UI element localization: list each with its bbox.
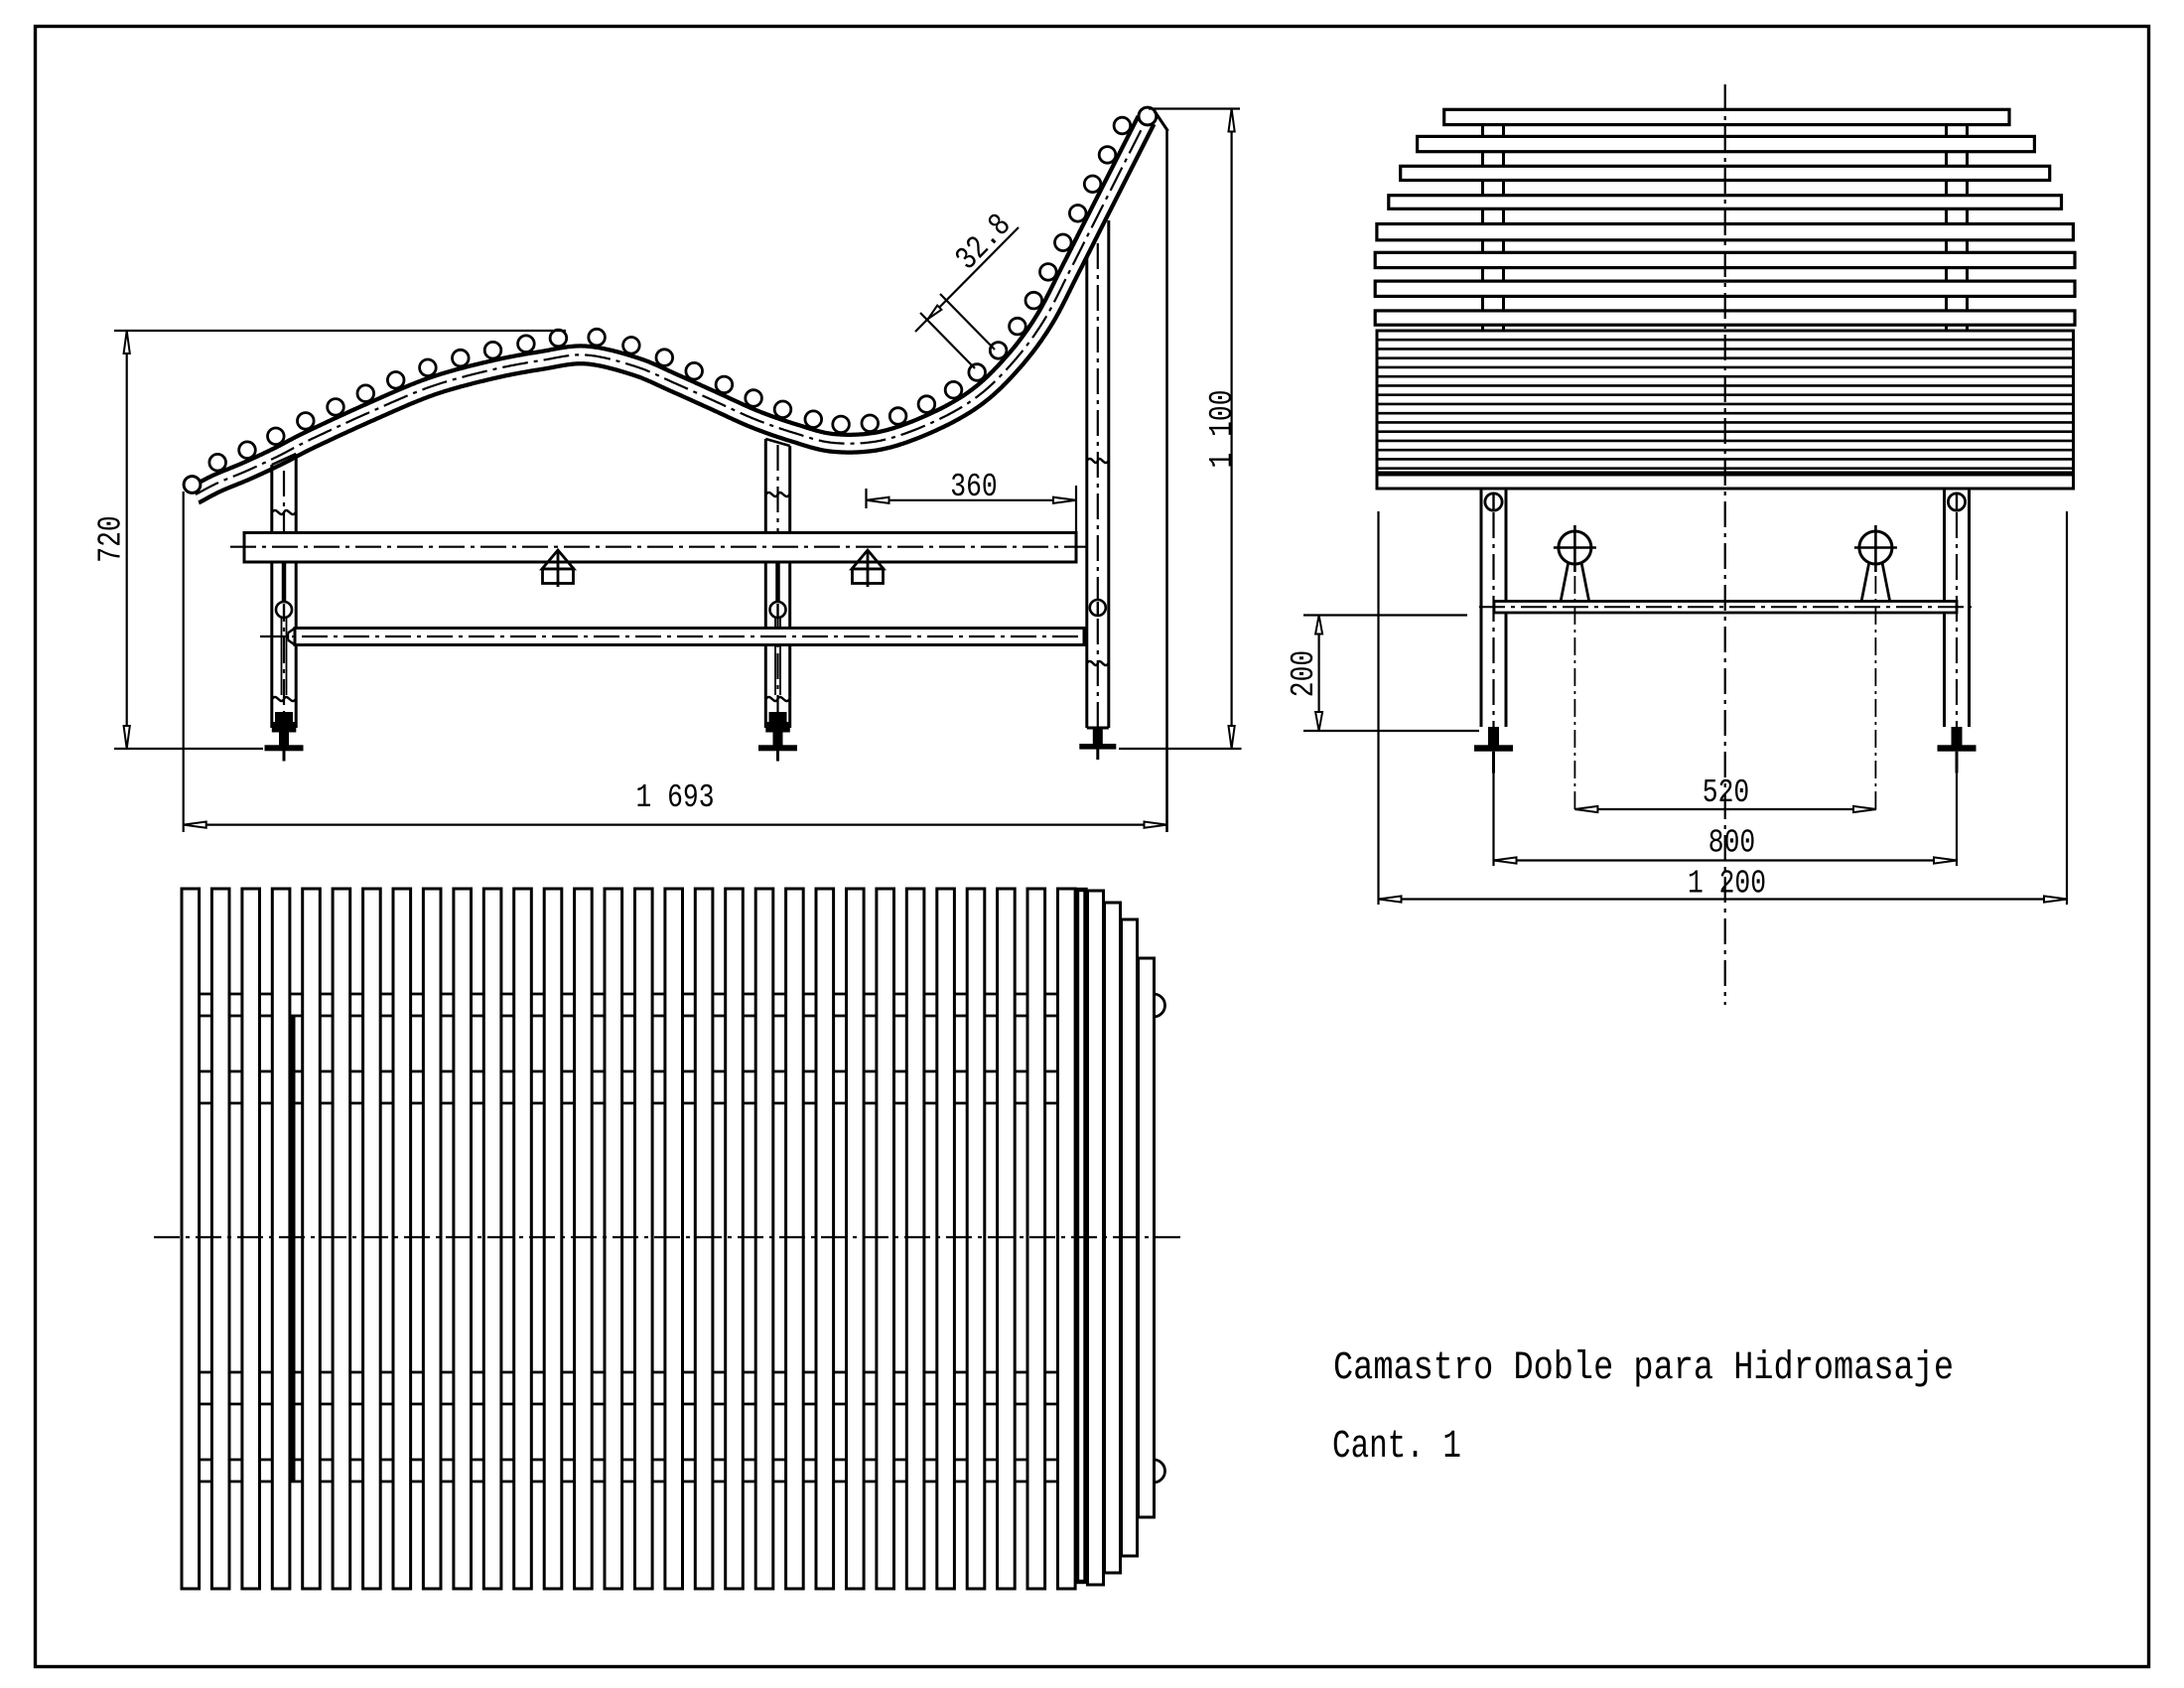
svg-text:1 693: 1 693 (636, 779, 715, 816)
svg-text:520: 520 (1703, 774, 1749, 811)
svg-text:1 200: 1 200 (1688, 866, 1766, 903)
svg-text:1 100: 1 100 (1204, 390, 1241, 469)
svg-text:800: 800 (1708, 825, 1755, 862)
svg-text:Cant. 1: Cant. 1 (1332, 1425, 1461, 1470)
svg-text:360: 360 (950, 469, 997, 505)
svg-text:200: 200 (1286, 650, 1322, 697)
svg-text:Camastro Doble para Hidromasaj: Camastro Doble para Hidromasaje (1333, 1346, 1954, 1391)
svg-text:720: 720 (93, 515, 130, 562)
